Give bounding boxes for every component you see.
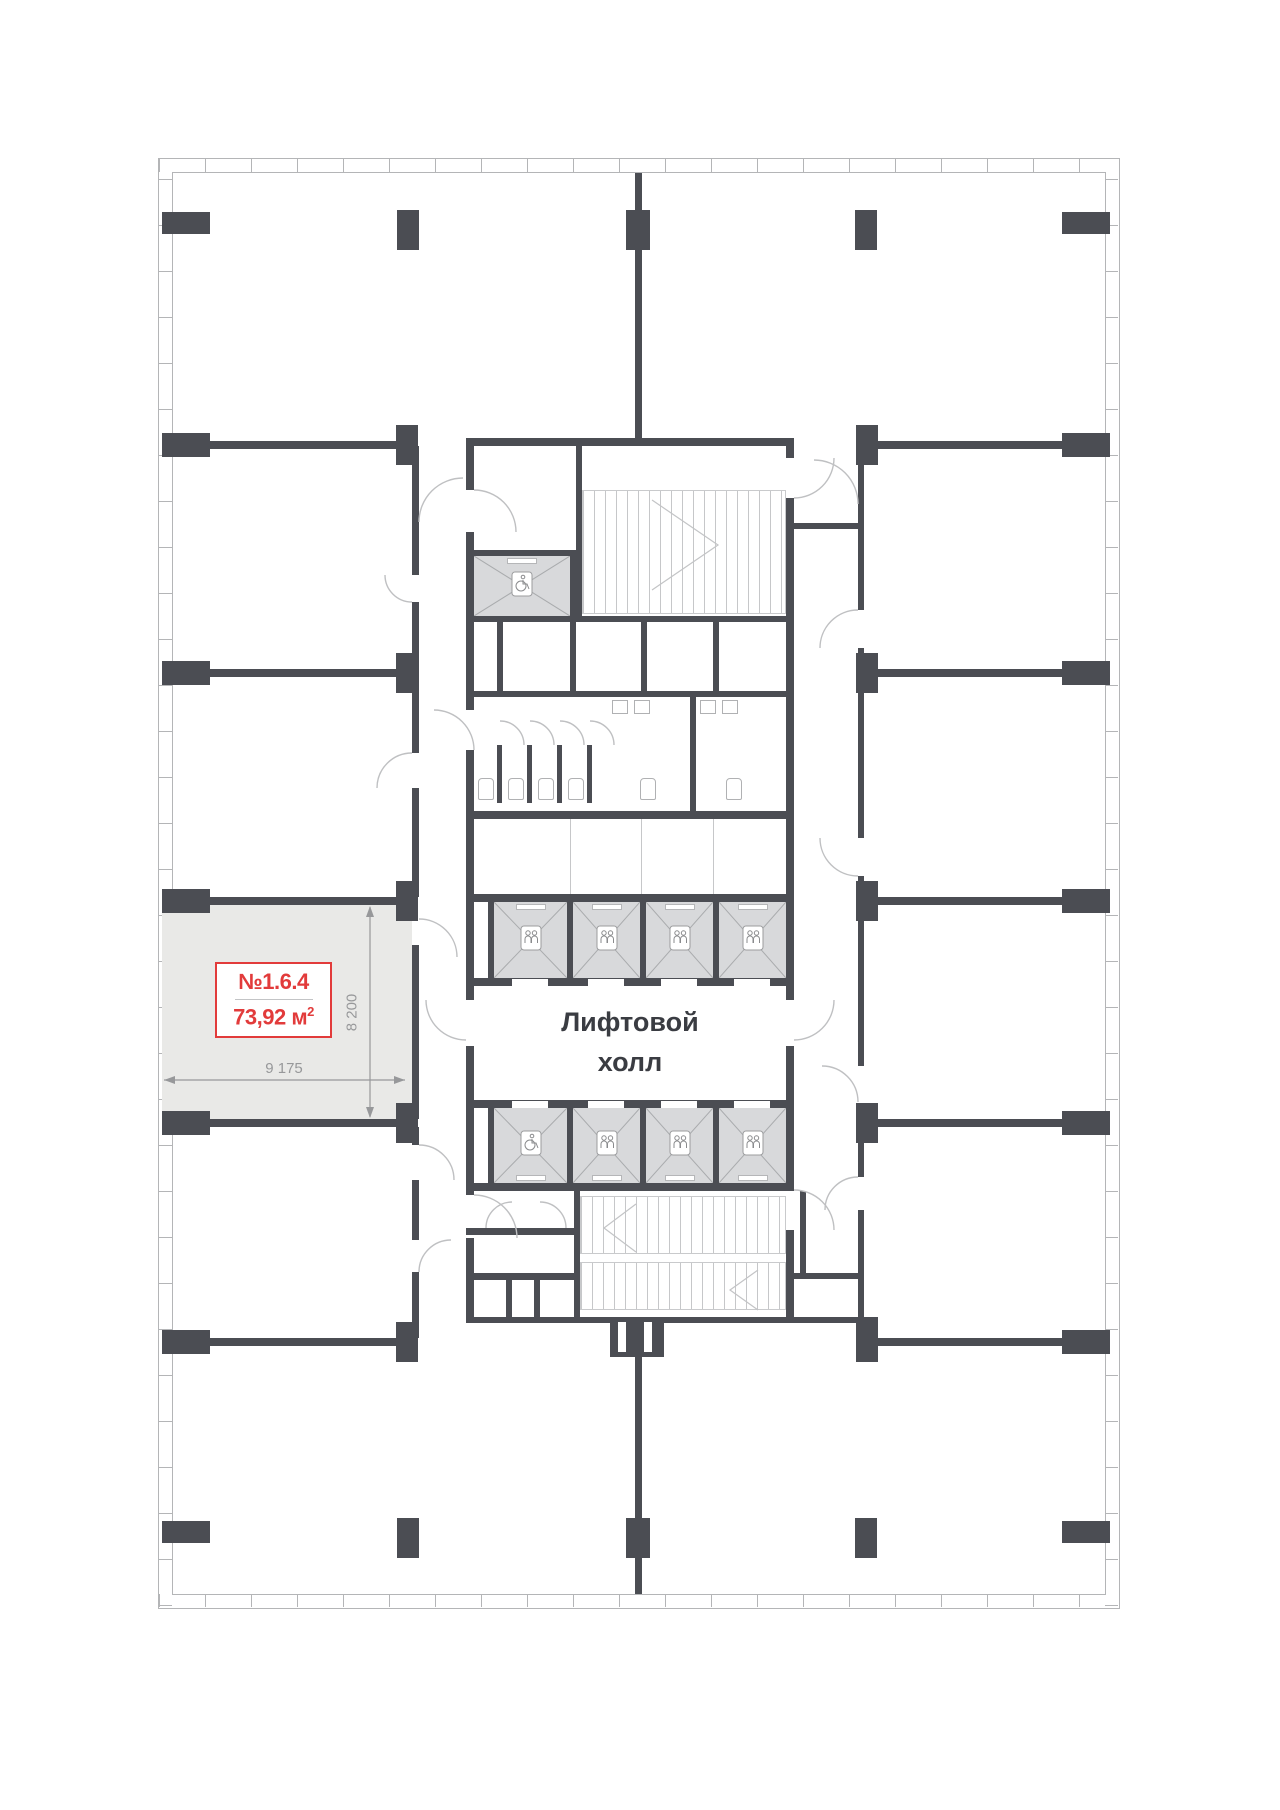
column bbox=[397, 210, 419, 250]
wall bbox=[412, 945, 419, 1119]
elevator-door-mark bbox=[738, 904, 768, 910]
wall bbox=[713, 1100, 719, 1191]
elevator-shaft bbox=[573, 1108, 640, 1183]
wall bbox=[466, 438, 474, 490]
toilet bbox=[640, 778, 656, 800]
wall bbox=[800, 1191, 806, 1273]
column bbox=[1062, 212, 1110, 234]
staircase-bottom-flight2 bbox=[580, 1262, 786, 1310]
column bbox=[1062, 661, 1110, 685]
wall bbox=[412, 1272, 419, 1338]
column bbox=[162, 1330, 210, 1354]
elevator-door-opening bbox=[734, 1101, 770, 1108]
wall bbox=[466, 1183, 794, 1191]
elevator-hall-label: Лифтовой холл bbox=[466, 1002, 794, 1082]
column bbox=[1062, 1111, 1110, 1135]
column bbox=[1062, 1521, 1110, 1543]
elevator-shaft bbox=[646, 1108, 713, 1183]
elevator-door-mark bbox=[516, 1175, 546, 1181]
elevator-door-mark bbox=[665, 1175, 695, 1181]
column bbox=[1062, 433, 1110, 457]
wall bbox=[466, 750, 474, 1000]
unit-label[interactable]: №1.6.4 73,92 м2 bbox=[215, 962, 332, 1038]
dimension-height: 8 200 bbox=[344, 983, 361, 1043]
wall bbox=[466, 1238, 474, 1322]
wall bbox=[474, 550, 576, 556]
wall bbox=[576, 446, 582, 622]
wall bbox=[466, 616, 794, 622]
elevator-passengers-icon bbox=[669, 925, 691, 956]
wall bbox=[786, 438, 794, 458]
shaft-line bbox=[570, 819, 571, 894]
elevator-door-mark bbox=[738, 1175, 768, 1181]
elevator-shaft bbox=[719, 902, 786, 978]
wall bbox=[570, 622, 576, 691]
wall bbox=[858, 876, 864, 1066]
elevator-door-mark bbox=[516, 904, 546, 910]
wall bbox=[567, 894, 573, 986]
unit-area: 73,92 м2 bbox=[233, 1004, 314, 1030]
wc-partition bbox=[497, 745, 502, 803]
wall bbox=[858, 446, 864, 610]
wall bbox=[412, 1180, 419, 1240]
wall bbox=[506, 1280, 512, 1317]
elevator-shaft bbox=[573, 902, 640, 978]
wall bbox=[794, 1273, 858, 1279]
wc-partition bbox=[557, 745, 562, 803]
sink bbox=[700, 700, 716, 714]
mullion-ticks-top bbox=[159, 159, 1117, 172]
wall bbox=[574, 1191, 580, 1317]
door-notch bbox=[618, 1322, 626, 1352]
column bbox=[162, 212, 210, 234]
wall bbox=[466, 691, 794, 697]
wall bbox=[412, 788, 419, 897]
shaft-line bbox=[713, 819, 714, 894]
column bbox=[162, 1111, 210, 1135]
wall bbox=[786, 498, 794, 1000]
shaft-line bbox=[641, 819, 642, 894]
wall bbox=[786, 1230, 794, 1322]
wall bbox=[713, 622, 719, 691]
wall bbox=[466, 1317, 878, 1323]
wall bbox=[488, 894, 494, 986]
dimension-width: 9 175 bbox=[234, 1060, 334, 1077]
wheelchair-icon bbox=[520, 1130, 542, 1161]
column bbox=[397, 1518, 419, 1558]
wall bbox=[466, 1228, 580, 1235]
wall bbox=[794, 523, 858, 529]
sink bbox=[722, 700, 738, 714]
wall bbox=[412, 602, 419, 753]
elevator-door-opening bbox=[512, 979, 548, 986]
column bbox=[626, 1518, 650, 1558]
wall bbox=[567, 1100, 573, 1191]
wall bbox=[466, 1273, 580, 1280]
toilet bbox=[568, 778, 584, 800]
mullion-ticks-right bbox=[1105, 159, 1118, 1606]
elevator-shaft bbox=[719, 1108, 786, 1183]
wall bbox=[858, 1104, 864, 1177]
wall bbox=[466, 894, 794, 902]
wall bbox=[412, 1127, 419, 1145]
mullion-ticks-left bbox=[159, 159, 172, 1606]
elevator-hall-label-line2: холл bbox=[466, 1042, 794, 1082]
elevator-door-opening bbox=[734, 979, 770, 986]
staircase-bottom-flight1 bbox=[580, 1196, 786, 1254]
toilet bbox=[478, 778, 494, 800]
wall bbox=[635, 1357, 642, 1594]
column bbox=[626, 210, 650, 250]
sink bbox=[634, 700, 650, 714]
wc-partition bbox=[527, 745, 532, 803]
column bbox=[855, 210, 877, 250]
elevator-door-opening bbox=[661, 1101, 697, 1108]
wall bbox=[640, 894, 646, 986]
column bbox=[162, 433, 210, 457]
unit-number: №1.6.4 bbox=[238, 969, 308, 995]
unit-label-divider bbox=[235, 999, 313, 1000]
wall bbox=[640, 1100, 646, 1191]
toilet bbox=[538, 778, 554, 800]
elevator-door-mark bbox=[592, 1175, 622, 1181]
column bbox=[1062, 1330, 1110, 1354]
column bbox=[162, 1521, 210, 1543]
wall bbox=[690, 697, 696, 811]
toilet bbox=[508, 778, 524, 800]
elevator-door-opening bbox=[661, 979, 697, 986]
floor-plan: Лифтовой холл №1.6.4 73,92 м2 9 175 8 20… bbox=[0, 0, 1280, 1810]
elevator-shaft bbox=[494, 902, 567, 978]
elevator-passengers-icon bbox=[742, 1130, 764, 1161]
sink bbox=[612, 700, 628, 714]
elevator-shaft-accessible bbox=[494, 1108, 567, 1183]
elevator-door-mark bbox=[665, 904, 695, 910]
elevator-passengers-icon bbox=[742, 925, 764, 956]
wall bbox=[466, 438, 794, 446]
elevator-door-mark bbox=[592, 904, 622, 910]
wall bbox=[713, 894, 719, 986]
column bbox=[1062, 889, 1110, 913]
elevator-passengers-icon bbox=[520, 925, 542, 956]
wall bbox=[497, 622, 503, 691]
elevator-door-opening bbox=[512, 1101, 548, 1108]
wall bbox=[534, 1280, 540, 1317]
elevator-passengers-icon bbox=[669, 1130, 691, 1161]
staircase-top bbox=[582, 490, 786, 614]
elevator-passengers-icon bbox=[596, 1130, 618, 1161]
wc-partition bbox=[587, 745, 592, 803]
mullion-ticks-bottom bbox=[159, 1594, 1117, 1607]
toilet bbox=[726, 778, 742, 800]
wheelchair-icon bbox=[511, 571, 533, 602]
elevator-hall-label-line1: Лифтовой bbox=[466, 1002, 794, 1042]
wall bbox=[466, 811, 794, 819]
elevator-door-opening bbox=[588, 979, 624, 986]
column bbox=[162, 889, 210, 913]
elevator-passengers-icon bbox=[596, 925, 618, 956]
wall bbox=[858, 648, 864, 838]
elevator-door-mark bbox=[507, 558, 537, 564]
column bbox=[162, 661, 210, 685]
wall bbox=[641, 622, 647, 691]
elevator-shaft bbox=[646, 902, 713, 978]
door-notch bbox=[644, 1322, 652, 1352]
wall bbox=[412, 446, 419, 575]
service-elevator-shaft bbox=[474, 556, 570, 616]
elevator-door-opening bbox=[588, 1101, 624, 1108]
wall bbox=[488, 1100, 494, 1191]
column bbox=[855, 1518, 877, 1558]
